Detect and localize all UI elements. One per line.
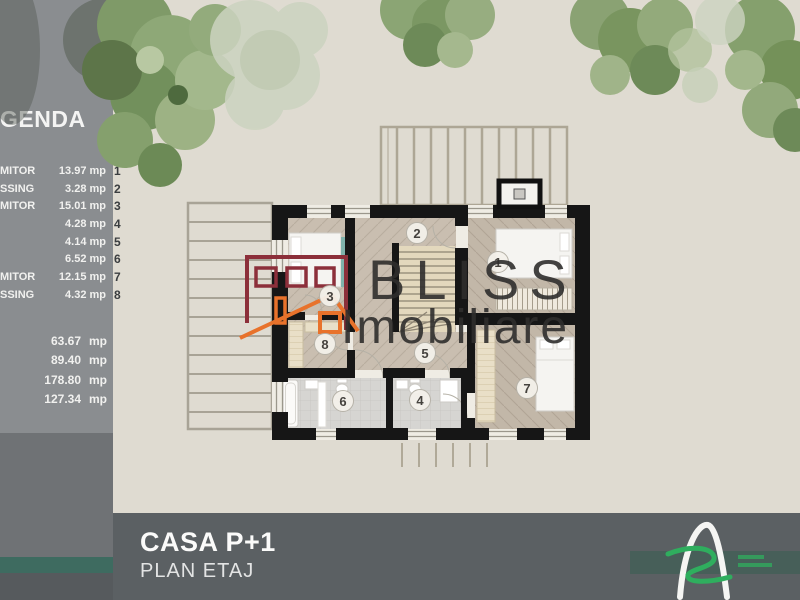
room-index: 8 <box>114 287 128 305</box>
legend-totals: 63.67mp 89.40mp 178.80mp 127.34mp <box>0 332 109 409</box>
legend-rows: MITOR13.97 mp SSING3.28 mp MITOR15.01 mp… <box>0 163 110 305</box>
legend-title: GENDA <box>0 106 110 133</box>
legend-row: MITOR15.01 mp <box>0 198 110 216</box>
total-row: 89.40mp <box>0 351 109 370</box>
room-area: 15.01 mp <box>35 198 110 216</box>
arch-icon <box>680 525 727 597</box>
total-row: 63.67mp <box>0 332 109 351</box>
room-index: 1 <box>114 163 128 181</box>
room-area: 6.52 mp <box>0 251 110 269</box>
shower-bath6 <box>318 382 326 427</box>
room-badge-7: 7 <box>516 377 538 399</box>
wardrobe-room8-left <box>289 322 303 368</box>
room-index: 5 <box>114 234 128 252</box>
room-area: 4.32 mp <box>34 287 110 305</box>
watermark-line2: Imobiliare <box>341 304 569 352</box>
deck-lines-bottom <box>402 443 487 467</box>
room-badge-3: 3 <box>319 285 341 307</box>
legend-row: SSING3.28 mp <box>0 181 110 199</box>
room-label: MITOR <box>0 269 35 287</box>
total-unit: mp <box>89 390 109 409</box>
plan-title: CASA P+1 <box>140 527 276 558</box>
legend-room-indexes: 1 2 3 4 5 6 7 8 <box>114 163 128 305</box>
room-area: 4.28 mp <box>0 216 110 234</box>
legend-row: 4.14 mp <box>0 234 110 252</box>
room-badge-4: 4 <box>409 389 431 411</box>
room-area: 13.97 mp <box>35 163 110 181</box>
total-value: 89.40 <box>51 351 81 370</box>
sidebar-bottom-block <box>0 573 113 600</box>
builder-logo <box>650 517 790 600</box>
footer-bar: CASA P+1 PLAN ETAJ <box>113 513 800 600</box>
legend-row: SSING4.32 mp <box>0 287 110 305</box>
room-index: 7 <box>114 269 128 287</box>
floor-plan-page: GENDA MITOR13.97 mp SSING3.28 mp MITOR15… <box>0 0 800 600</box>
total-unit: mp <box>89 371 109 390</box>
sink-bath6 <box>305 380 318 389</box>
tree-top-right <box>570 0 718 103</box>
legend-row: MITOR12.15 mp <box>0 269 110 287</box>
room-index: 6 <box>114 251 128 269</box>
trees <box>0 0 800 187</box>
logo-text-line1 <box>738 555 764 559</box>
room-label: MITOR <box>0 198 35 216</box>
bathtub-bath6 <box>283 380 298 427</box>
room-index: 2 <box>114 181 128 199</box>
total-unit: mp <box>89 351 109 370</box>
terrace-deck-left <box>188 203 272 429</box>
legend-row: 6.52 mp <box>0 251 110 269</box>
total-row: 127.34mp <box>0 390 109 409</box>
teal-accent-stripe <box>0 557 113 573</box>
room-label: SSING <box>0 287 34 305</box>
total-value: 127.34 <box>44 390 81 409</box>
room-area: 4.14 mp <box>0 234 110 252</box>
legend-row: 4.28 mp <box>0 216 110 234</box>
total-row: 178.80mp <box>0 371 109 390</box>
tree-faded <box>210 0 328 130</box>
total-unit: mp <box>89 332 109 351</box>
logo-text-line2 <box>738 563 772 567</box>
tree-far-right <box>695 0 800 152</box>
room-area: 12.15 mp <box>35 269 110 287</box>
shower-bath4 <box>440 380 458 402</box>
room-badge-2: 2 <box>406 222 428 244</box>
room-label: SSING <box>0 181 34 199</box>
room-badge-6: 6 <box>332 390 354 412</box>
pergola-top <box>381 127 567 205</box>
tree-top-middle <box>380 0 495 68</box>
room-index: 4 <box>114 216 128 234</box>
room-area: 3.28 mp <box>34 181 110 199</box>
total-value: 178.80 <box>44 371 81 390</box>
chimney-box <box>499 181 540 207</box>
total-value: 63.67 <box>51 332 81 351</box>
room-label: MITOR <box>0 163 35 181</box>
bed-room3 <box>289 233 353 287</box>
watermark-line1: BLISS <box>368 252 577 308</box>
legend-panel-lower <box>0 433 113 557</box>
sink-bath4 <box>396 380 408 389</box>
legend-row: MITOR13.97 mp <box>0 163 110 181</box>
room-badge-8: 8 <box>314 333 336 355</box>
plan-subtitle: PLAN ETAJ <box>140 560 254 583</box>
room-index: 3 <box>114 198 128 216</box>
